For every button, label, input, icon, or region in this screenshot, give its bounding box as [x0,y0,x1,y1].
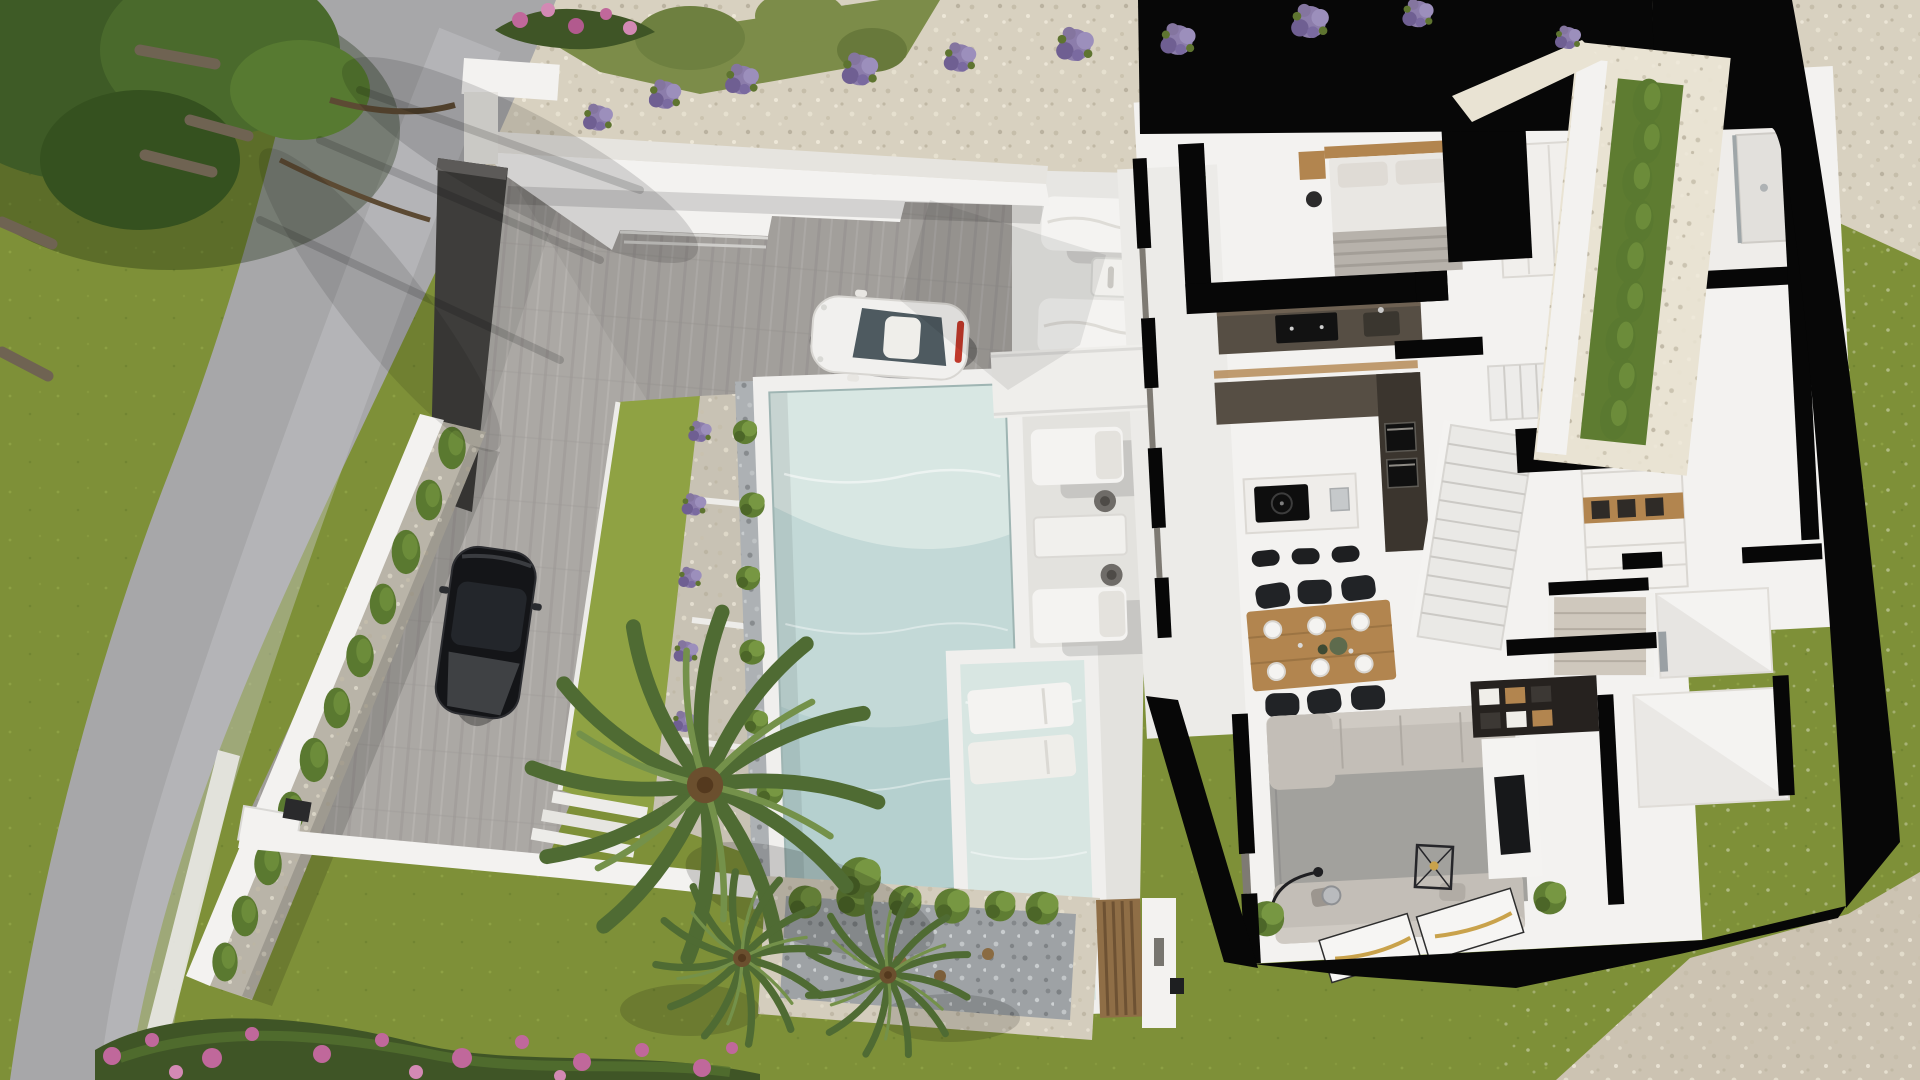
render-canvas [0,0,1920,1080]
cooktop [1275,312,1338,343]
mirror-ball [1322,886,1341,905]
side-table [1034,514,1127,557]
bollard-light [1170,978,1184,994]
timber-slat-gate [1096,898,1144,1017]
nightstand [1298,151,1325,180]
sink [1363,311,1400,337]
